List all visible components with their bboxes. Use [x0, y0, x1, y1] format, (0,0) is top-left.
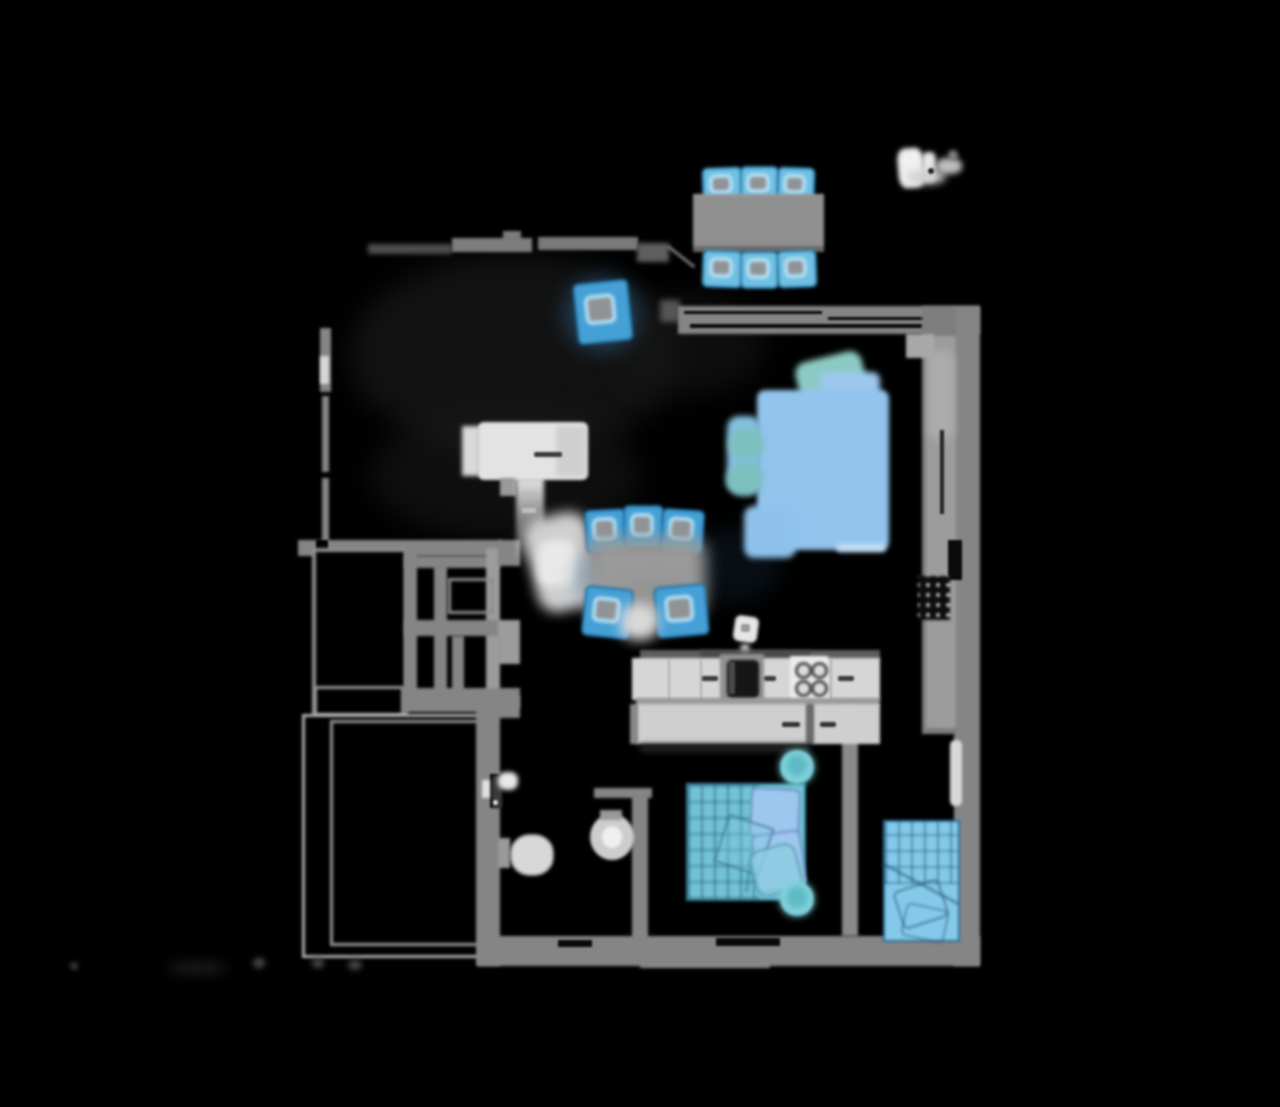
window-glass-line [716, 938, 780, 946]
toilet-bowl [510, 834, 554, 876]
white-logo-smudge [948, 150, 958, 160]
stool-center [741, 624, 750, 632]
lounge-chair-core [538, 540, 576, 586]
stove-burner [795, 680, 812, 697]
wardrobe-door-groove [940, 430, 944, 514]
stove [790, 656, 828, 700]
balcony-house-wall [476, 704, 500, 966]
window-glass-line [684, 311, 822, 314]
wall-fragment [538, 237, 638, 250]
sofa-foot [744, 506, 796, 558]
dining-chair [740, 251, 779, 289]
door-hinge [493, 800, 498, 805]
wall-stub [498, 620, 520, 664]
sofa-edge-highlight [836, 544, 886, 552]
window-glass-line [828, 317, 924, 320]
dining-chair [653, 583, 710, 639]
cabinet-handle [764, 676, 776, 681]
cabinet-divider [830, 658, 832, 700]
island-handle [782, 722, 800, 727]
wall-fragment [503, 231, 521, 240]
cabinet-handle [838, 676, 854, 681]
balcony-inner-railing [330, 720, 484, 946]
faint-speck [348, 960, 362, 970]
washbasin-bowl [602, 826, 622, 848]
faint-speck [312, 958, 324, 968]
wall-fragment [452, 238, 532, 252]
door-highlight [498, 772, 518, 790]
fireplace-panel [918, 576, 950, 620]
balcony-room-remnant [314, 686, 404, 716]
stool-speck [740, 644, 750, 651]
dining-chair [701, 249, 743, 288]
dining-chair [776, 249, 817, 288]
stove-burner [811, 680, 828, 697]
washbasin-tap [600, 810, 622, 820]
island-seam [806, 704, 814, 744]
stove-burner [795, 662, 812, 679]
cabinet-handle [534, 452, 562, 457]
corner-panel [906, 334, 934, 358]
door-slot [950, 740, 962, 806]
stairs-structure [434, 566, 447, 704]
faint-speck [253, 958, 265, 968]
bathroom-wall-right [632, 796, 648, 946]
window-glass-line [690, 324, 922, 328]
white-blob [620, 604, 658, 640]
stove-burner [811, 662, 828, 679]
sofa-arm-cushion [728, 428, 764, 460]
cabinet-handle [702, 676, 718, 681]
sink-edge [729, 662, 735, 694]
white-logo-smudge [906, 170, 946, 184]
bed-blanket-grid [885, 822, 958, 884]
wall-niche [948, 540, 962, 580]
plant-stool [780, 750, 814, 784]
dining-chair [572, 278, 634, 346]
floor-plan [0, 0, 1280, 1107]
corridor-mark [522, 492, 538, 497]
cabinet-divider [668, 658, 670, 700]
logo-dark-dot [928, 168, 934, 174]
plant-stool [780, 882, 814, 916]
stairs-structure [448, 578, 494, 614]
wall-left-segment [322, 396, 329, 472]
door-slot [482, 780, 490, 798]
stairs-structure [404, 620, 500, 636]
island-handle [820, 722, 836, 727]
wall-fragment [368, 244, 452, 254]
wall-fragment [660, 300, 680, 322]
window-slot [320, 356, 329, 384]
toilet-tank [498, 838, 510, 868]
hall-cabinet-side [556, 426, 586, 476]
wall-bottom-step [640, 960, 770, 968]
wall-left-segment [322, 478, 329, 542]
wall-fragment [637, 243, 669, 262]
wall-band [404, 688, 520, 708]
island-shadow [640, 744, 810, 752]
wardrobe-highlight [928, 350, 954, 440]
table-leg-line [667, 245, 696, 268]
faint-speck [168, 962, 228, 974]
corridor-mark [522, 508, 536, 513]
cabinet-leg [500, 478, 516, 496]
single-bed [883, 820, 960, 942]
faint-speck [70, 962, 78, 970]
window-glass-line [558, 940, 592, 947]
floor-plan-screenshot [0, 0, 1280, 1107]
dining-table [693, 194, 824, 252]
sofa-arm-cushion [726, 462, 764, 496]
island-cap [630, 704, 638, 744]
